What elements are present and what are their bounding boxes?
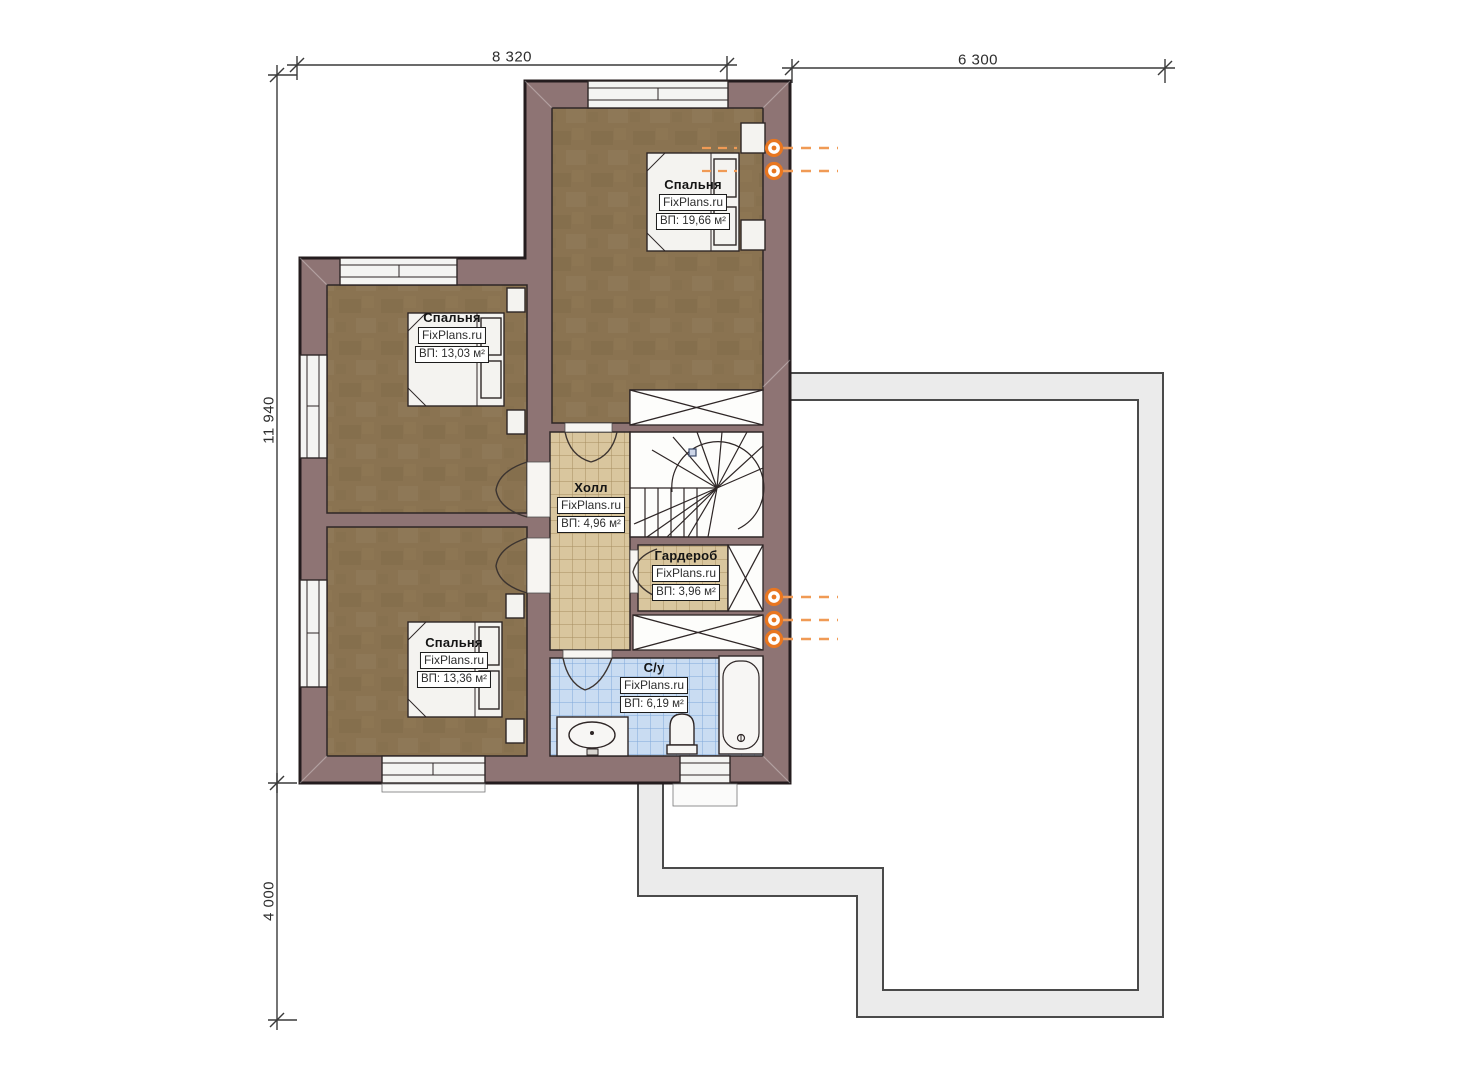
double-bed-icon <box>647 153 739 251</box>
double-bed-icon <box>408 313 504 406</box>
nightstand-icon <box>506 594 524 618</box>
toilet-icon <box>667 714 697 754</box>
radiator-icon <box>767 613 839 628</box>
wardrobe-floor <box>638 545 728 611</box>
sink-vanity-icon <box>557 717 628 756</box>
window-icon <box>673 756 737 806</box>
closet-icon <box>630 390 763 425</box>
closet-icon <box>728 545 763 611</box>
radiator-icon <box>767 632 839 647</box>
window-icon <box>300 355 327 458</box>
nightstand-icon <box>507 410 525 434</box>
double-bed-icon <box>408 622 502 717</box>
window-icon <box>340 258 457 285</box>
radiator-icon <box>767 590 839 605</box>
window-icon <box>300 580 327 687</box>
floor-plan: Спальня FixPlans.ru ВП: 19,66 м² Спальня… <box>0 0 1473 1080</box>
dimension-left-height: 11 940 <box>261 396 278 444</box>
nightstand-icon <box>507 288 525 312</box>
window-icon <box>588 81 728 108</box>
closet-icon <box>633 615 763 650</box>
stair-node-icon <box>689 449 696 456</box>
bathtub-icon <box>719 656 763 754</box>
dimension-top-right-width: 6 300 <box>958 52 998 69</box>
hall-floor <box>550 432 630 650</box>
floor-plan-drawing <box>0 0 1473 1080</box>
nightstand-icon <box>506 719 524 743</box>
nightstand-icon <box>741 220 765 250</box>
nightstand-icon <box>741 123 765 153</box>
dimension-bottom-height: 4 000 <box>261 881 278 921</box>
window-icon <box>382 756 485 792</box>
dimension-top-width: 8 320 <box>492 49 532 66</box>
